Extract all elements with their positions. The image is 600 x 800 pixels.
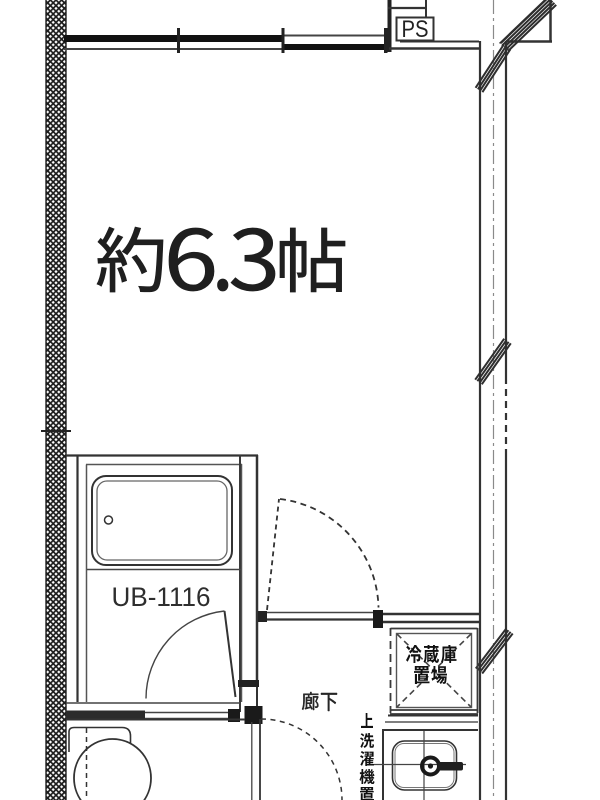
svg-text:UB-1116: UB-1116 (112, 582, 211, 612)
svg-text:PS: PS (402, 16, 429, 43)
